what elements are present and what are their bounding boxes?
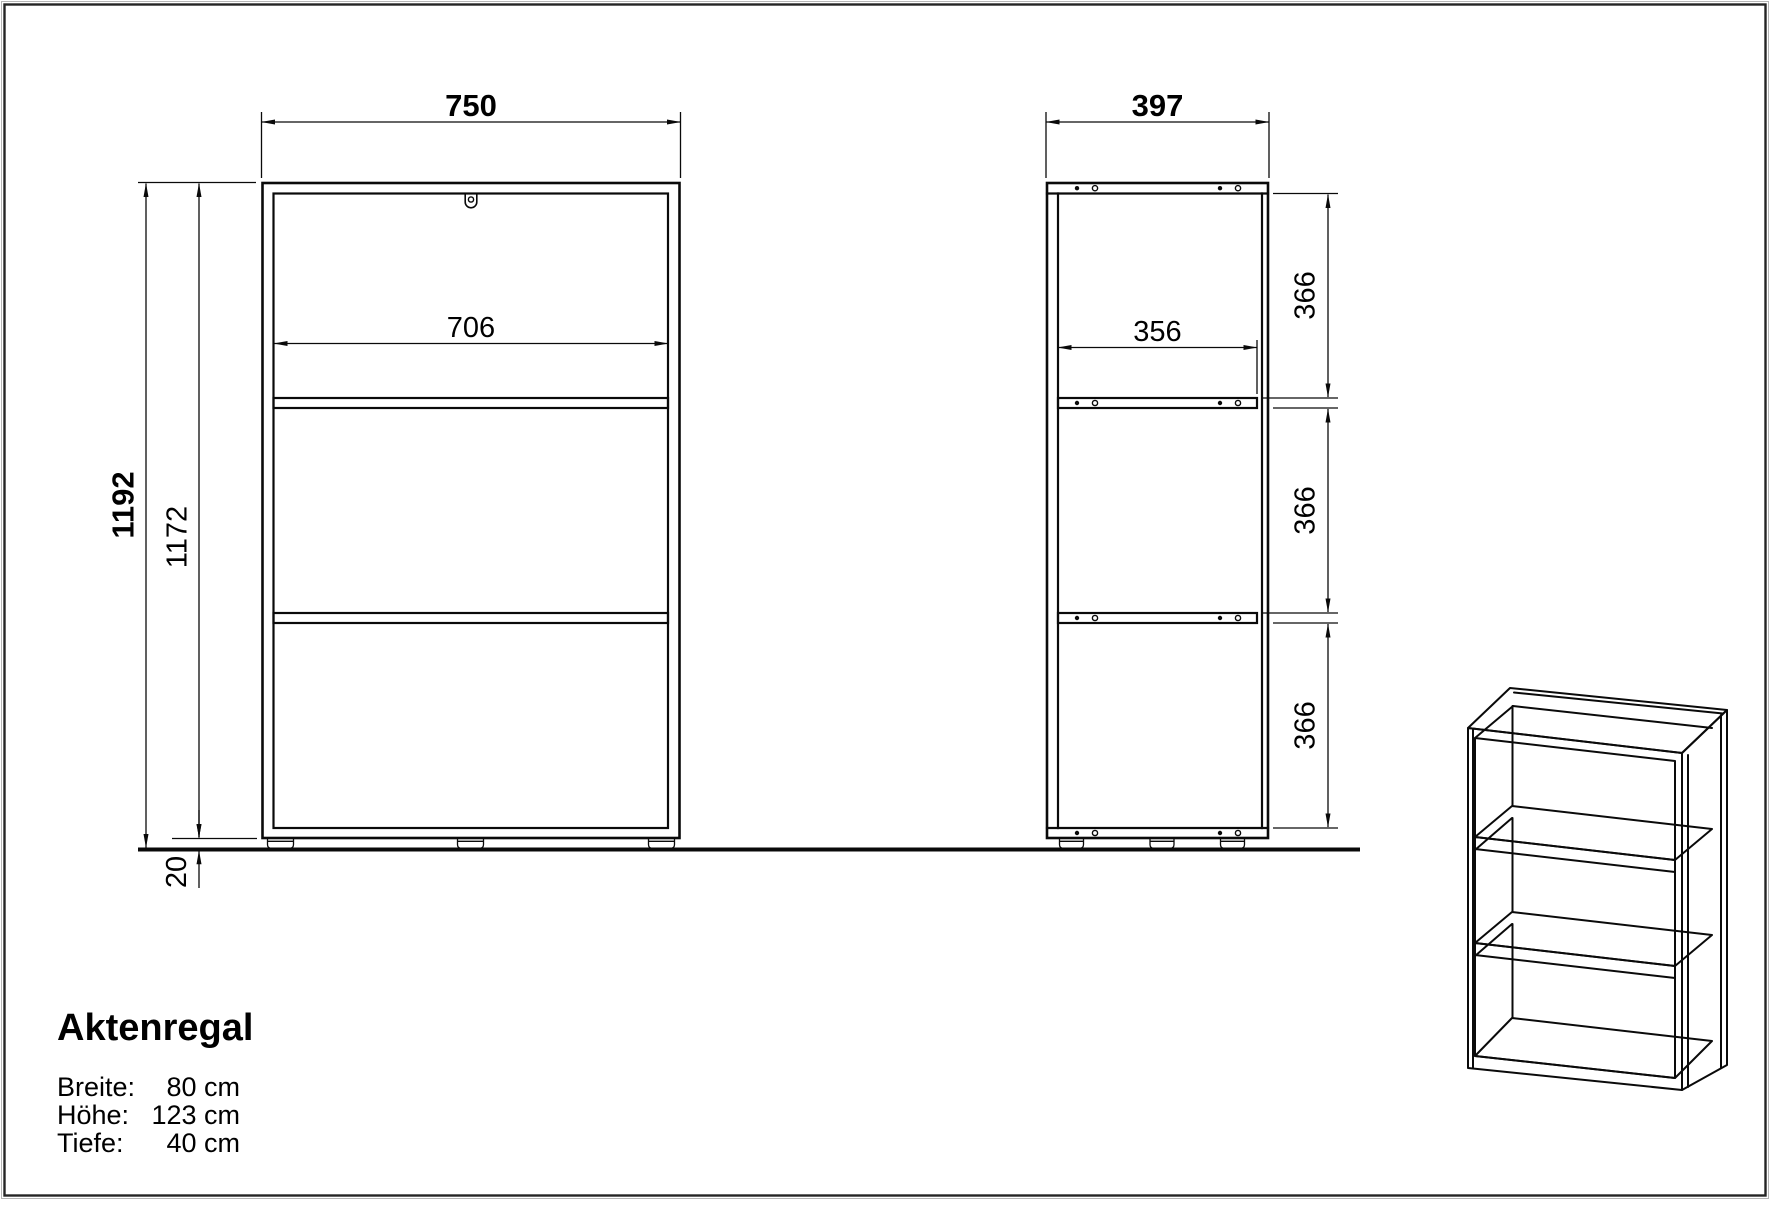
spec-label: Höhe: xyxy=(57,1100,129,1130)
screw-hole xyxy=(1235,400,1240,405)
foot xyxy=(458,838,484,848)
side-shelf-1 xyxy=(1058,398,1257,408)
title-block: Aktenregal Breite: 80 cm Höhe: 123 cm Ti… xyxy=(57,1007,253,1158)
drawing-sheet: 750 706 1192 1172 20 xyxy=(0,0,1770,1200)
iso-shelf-2-front xyxy=(1475,943,1675,978)
spec-row-breite: Breite: 80 cm xyxy=(57,1072,240,1102)
screw-hole xyxy=(1092,830,1097,835)
spec-value: 40 cm xyxy=(166,1128,240,1158)
front-feet xyxy=(268,838,675,848)
side-shelf-2 xyxy=(1058,613,1257,623)
spec-row-tiefe: Tiefe: 40 cm xyxy=(57,1128,240,1158)
screw-hole xyxy=(1092,186,1097,191)
screw-hole xyxy=(1218,831,1222,835)
front-shelf-1 xyxy=(274,398,669,408)
screw-hole xyxy=(1092,615,1097,620)
spec-row-hoehe: Höhe: 123 cm xyxy=(57,1100,240,1130)
dim-value-body-height: 1172 xyxy=(162,506,194,568)
screw-hole xyxy=(1218,401,1222,405)
screw-hole xyxy=(1075,186,1079,190)
screw-hole xyxy=(1092,400,1097,405)
foot xyxy=(1221,838,1245,848)
dim-value-inner-depth: 356 xyxy=(1133,316,1181,348)
iso-bottom-panel-top xyxy=(1475,1018,1712,1078)
technical-drawing-canvas: 750 706 1192 1172 20 xyxy=(0,0,1770,1200)
dim-side-depth: 397 xyxy=(1046,88,1269,178)
screw-holes xyxy=(1075,186,1241,836)
iso-shelf-2-top xyxy=(1475,912,1712,966)
dim-value-inner-width: 706 xyxy=(447,312,495,344)
dim-front-body-height: 1172 xyxy=(162,184,258,839)
dim-side-inner-depth: 356 xyxy=(1058,316,1257,394)
front-view: 750 706 1192 1172 20 xyxy=(106,88,681,888)
spec-label: Tiefe: xyxy=(57,1128,124,1158)
front-outer-outline xyxy=(263,183,680,838)
dim-value-overall-depth: 397 xyxy=(1132,88,1184,123)
front-shelf-2 xyxy=(274,613,669,623)
screw-hole xyxy=(1218,186,1222,190)
dim-value-section-3: 366 xyxy=(1290,701,1322,749)
iso-front-frame xyxy=(1468,728,1682,1090)
iso-shelf-1-top xyxy=(1475,806,1712,860)
front-inner-outline xyxy=(274,194,669,829)
screw-hole xyxy=(1235,830,1240,835)
dim-value-total-height: 1192 xyxy=(106,471,141,538)
dim-front-width: 750 xyxy=(262,88,681,178)
screw-hole xyxy=(1218,616,1222,620)
screw-hole xyxy=(1235,615,1240,620)
screw-hole xyxy=(1075,616,1079,620)
dim-front-inner-width: 706 xyxy=(274,312,668,344)
iso-front-opening xyxy=(1475,738,1675,1078)
spec-value: 123 cm xyxy=(151,1100,240,1130)
side-view: 397 356 366 366 366 xyxy=(1046,88,1338,848)
foot xyxy=(1150,838,1174,848)
screw-hole xyxy=(1235,186,1240,191)
keyhole-fitting xyxy=(465,194,477,208)
spec-value: 80 cm xyxy=(166,1072,240,1102)
sheet-outer-border xyxy=(2,2,1769,1199)
iso-shelf-1-front xyxy=(1475,837,1675,872)
dim-side-sections: 366 366 366 xyxy=(1261,194,1338,829)
dim-value-section-2: 366 xyxy=(1290,486,1322,534)
dim-value-foot-height: 20 xyxy=(161,856,193,888)
screw-hole xyxy=(1075,831,1079,835)
dim-value-section-1: 366 xyxy=(1290,271,1322,319)
screw-hole xyxy=(1075,401,1079,405)
foot xyxy=(268,838,294,848)
dim-value-overall-width: 750 xyxy=(445,88,497,123)
product-title: Aktenregal xyxy=(57,1007,253,1049)
side-outer-outline xyxy=(1047,183,1268,838)
isometric-view xyxy=(1468,688,1727,1090)
foot xyxy=(1060,838,1084,848)
spec-label: Breite: xyxy=(57,1072,135,1102)
foot xyxy=(649,838,675,848)
side-feet xyxy=(1060,838,1245,848)
